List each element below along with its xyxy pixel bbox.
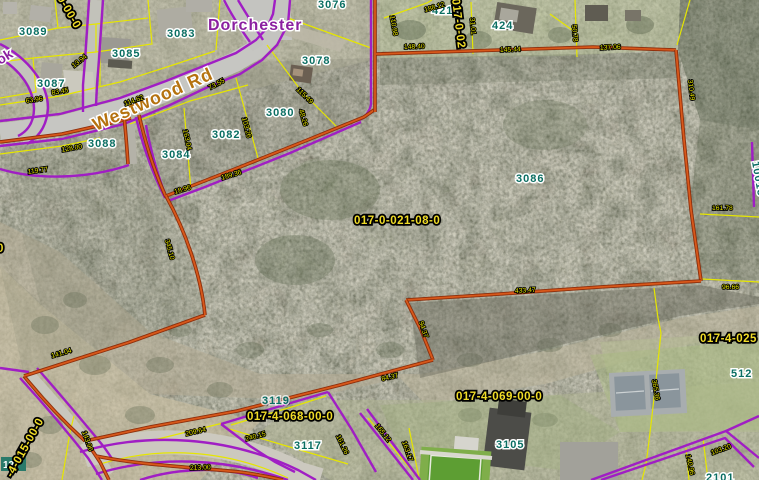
svg-text:3084: 3084	[162, 149, 190, 161]
svg-text:3085: 3085	[112, 48, 140, 60]
svg-text:017-4-025: 017-4-025	[700, 333, 757, 345]
svg-text:3089: 3089	[19, 26, 47, 38]
svg-text:3088: 3088	[88, 138, 116, 150]
svg-text:017-4-068-00-0: 017-4-068-00-0	[247, 411, 333, 423]
svg-text:512: 512	[731, 368, 752, 380]
svg-text:2101: 2101	[706, 472, 734, 480]
svg-text:3082: 3082	[212, 129, 240, 141]
svg-text:3078: 3078	[302, 55, 330, 67]
svg-text:50.78: 50.78	[570, 25, 578, 43]
svg-text:137.06: 137.06	[600, 44, 621, 52]
svg-text:31.01: 31.01	[468, 18, 476, 36]
svg-text:017-4-069-00-0: 017-4-069-00-0	[456, 391, 542, 403]
svg-text:3080: 3080	[266, 107, 294, 119]
svg-text:3076: 3076	[318, 0, 346, 11]
svg-text:Dorchester: Dorchester	[208, 17, 302, 34]
svg-text:3083: 3083	[167, 28, 195, 40]
svg-text:424: 424	[492, 20, 513, 32]
svg-text:3086: 3086	[516, 173, 544, 185]
svg-text:161.78: 161.78	[712, 205, 733, 212]
svg-text:213.00: 213.00	[190, 464, 211, 472]
svg-text:145.44: 145.44	[500, 46, 521, 54]
svg-text:3117: 3117	[294, 440, 322, 452]
svg-text:0: 0	[0, 243, 4, 255]
svg-text:96.66: 96.66	[722, 284, 739, 291]
svg-text:3119: 3119	[262, 395, 290, 407]
svg-text:017-0-021-08-0: 017-0-021-08-0	[354, 215, 440, 227]
svg-text:433.47: 433.47	[515, 287, 536, 295]
svg-text:148.40: 148.40	[404, 43, 425, 51]
svg-text:3105: 3105	[496, 439, 524, 451]
